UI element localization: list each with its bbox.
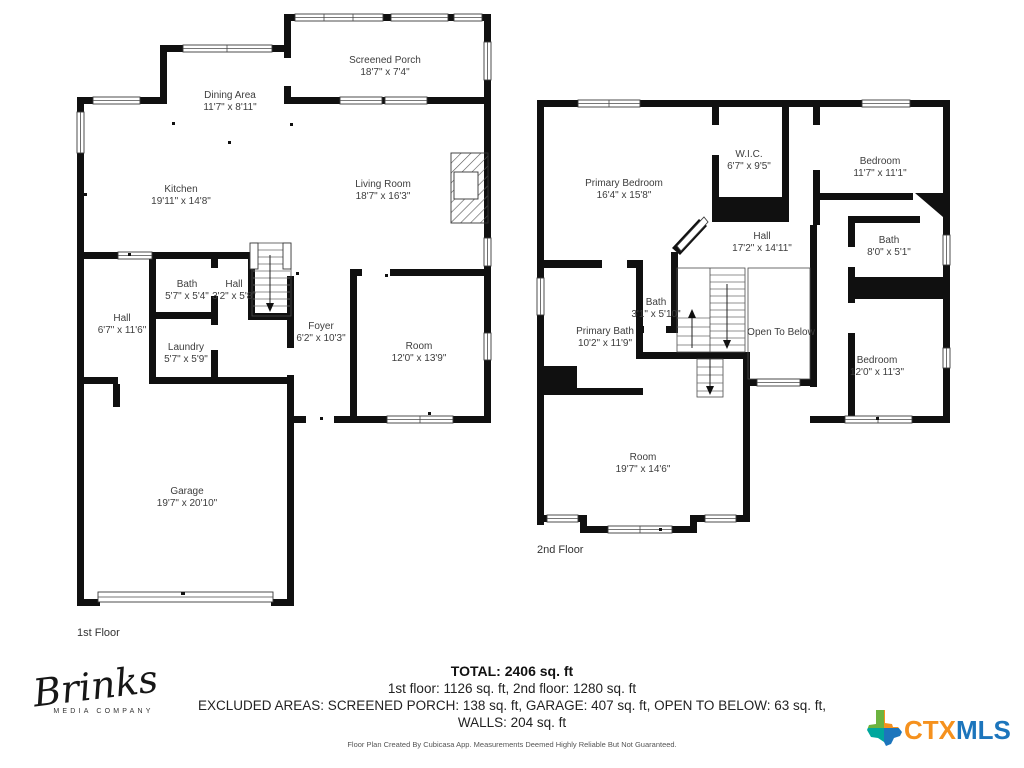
open-to-below-outline <box>748 268 810 379</box>
room-label-room1: Room <box>406 341 433 352</box>
room-label-foyer: Foyer <box>308 321 334 332</box>
room-dims-bath-small: 3'1" x 5'10" <box>631 309 681 320</box>
room-dims-bedroom-top: 11'7" x 11'1" <box>853 168 907 179</box>
room-dims-hall2: 17'2" x 14'11" <box>732 243 792 254</box>
room-dims-wic: 6'7" x 9'5" <box>727 161 771 172</box>
second-floor-plan: Primary Bedroom 16'4" x 15'8" W.I.C. 6'7… <box>537 100 950 556</box>
room-label-kitchen: Kitchen <box>164 184 197 195</box>
fireplace <box>451 153 488 223</box>
ctx-text: CTX <box>904 715 957 745</box>
room-label-primary-bedroom: Primary Bedroom <box>585 178 663 189</box>
room-label-hall2: Hall <box>753 231 770 242</box>
room-dims-dining: 11'7" x 8'11" <box>203 102 257 113</box>
second-floor-label: 2nd Floor <box>537 544 584 556</box>
room-dims-screened-porch: 18'7" x 7'4" <box>360 67 410 78</box>
texas-icon <box>864 708 904 748</box>
floor-plan-canvas: Screened Porch 18'7" x 7'4" Dining Area … <box>0 0 1024 768</box>
room-dims-primary-bedroom: 16'4" x 15'8" <box>597 190 652 201</box>
room-label-primary-bath: Primary Bath <box>576 326 634 337</box>
mls-text: MLS <box>956 715 1011 745</box>
first-floor-stairs <box>250 243 291 316</box>
first-floor-label: 1st Floor <box>77 627 120 639</box>
room-label-wic: W.I.C. <box>735 149 762 160</box>
room-dims-hall-small: 3'2" x 5'8" <box>212 291 256 302</box>
room-dims-garage: 19'7" x 20'10" <box>157 498 218 509</box>
room-label-room2: Room <box>630 452 657 463</box>
stairs-below-arrow <box>706 386 714 395</box>
ctxmls-logo-text: CTXMLS <box>904 715 1011 745</box>
room-dims-bath2: 8'0" x 5'1" <box>867 247 911 258</box>
room-dims-room1: 12'0" x 13'9" <box>392 353 447 364</box>
room-label-open-to-below: Open To Below <box>747 327 815 338</box>
floor-plan-page: Screened Porch 18'7" x 7'4" Dining Area … <box>0 0 1024 768</box>
room-label-bedroom-top: Bedroom <box>860 156 901 167</box>
room-dims-kitchen: 19'11" x 14'8" <box>151 196 211 207</box>
ctxmls-logo-svg: CTXMLS <box>864 708 1012 750</box>
room-label-dining: Dining Area <box>204 90 256 101</box>
stairs-down-arrow <box>266 303 274 312</box>
room-label-bath2: Bath <box>879 235 900 246</box>
room-dims-room2: 19'7" x 14'6" <box>616 464 671 475</box>
room-dims-bath1: 5'7" x 5'4" <box>165 291 209 302</box>
room-label-bedroom-bottom: Bedroom <box>857 355 898 366</box>
first-floor-labels: Screened Porch 18'7" x 7'4" Dining Area … <box>77 55 447 639</box>
brinks-logo: Brinks MEDIA COMPANY <box>28 666 163 715</box>
room-dims-primary-bath: 10'2" x 11'9" <box>578 338 633 349</box>
primary-bedroom-door <box>677 217 708 251</box>
room-dims-laundry: 5'7" x 5'9" <box>164 354 208 365</box>
room-label-garage: Garage <box>170 486 204 497</box>
room-dims-foyer: 6'2" x 10'3" <box>296 333 346 344</box>
stairs-up-arrow <box>688 309 696 318</box>
room-label-hall1: Hall <box>113 313 130 324</box>
ctxmls-logo: CTXMLS <box>864 708 1012 755</box>
room-label-bath1: Bath <box>177 279 198 290</box>
stairs-down-arrow-2 <box>723 340 731 349</box>
room-dims-bedroom-bottom: 12'0" x 11'3" <box>850 367 905 378</box>
room-label-bath-small: Bath <box>646 297 667 308</box>
room-label-laundry: Laundry <box>168 342 204 353</box>
room-dims-hall1: 6'7" x 11'6" <box>98 325 147 336</box>
room-label-living: Living Room <box>355 179 411 190</box>
room-dims-living: 18'7" x 16'3" <box>356 191 411 202</box>
room-label-screened-porch: Screened Porch <box>349 55 421 66</box>
first-floor-plan: Screened Porch 18'7" x 7'4" Dining Area … <box>77 14 491 639</box>
room-label-hall-small: Hall <box>225 279 242 290</box>
